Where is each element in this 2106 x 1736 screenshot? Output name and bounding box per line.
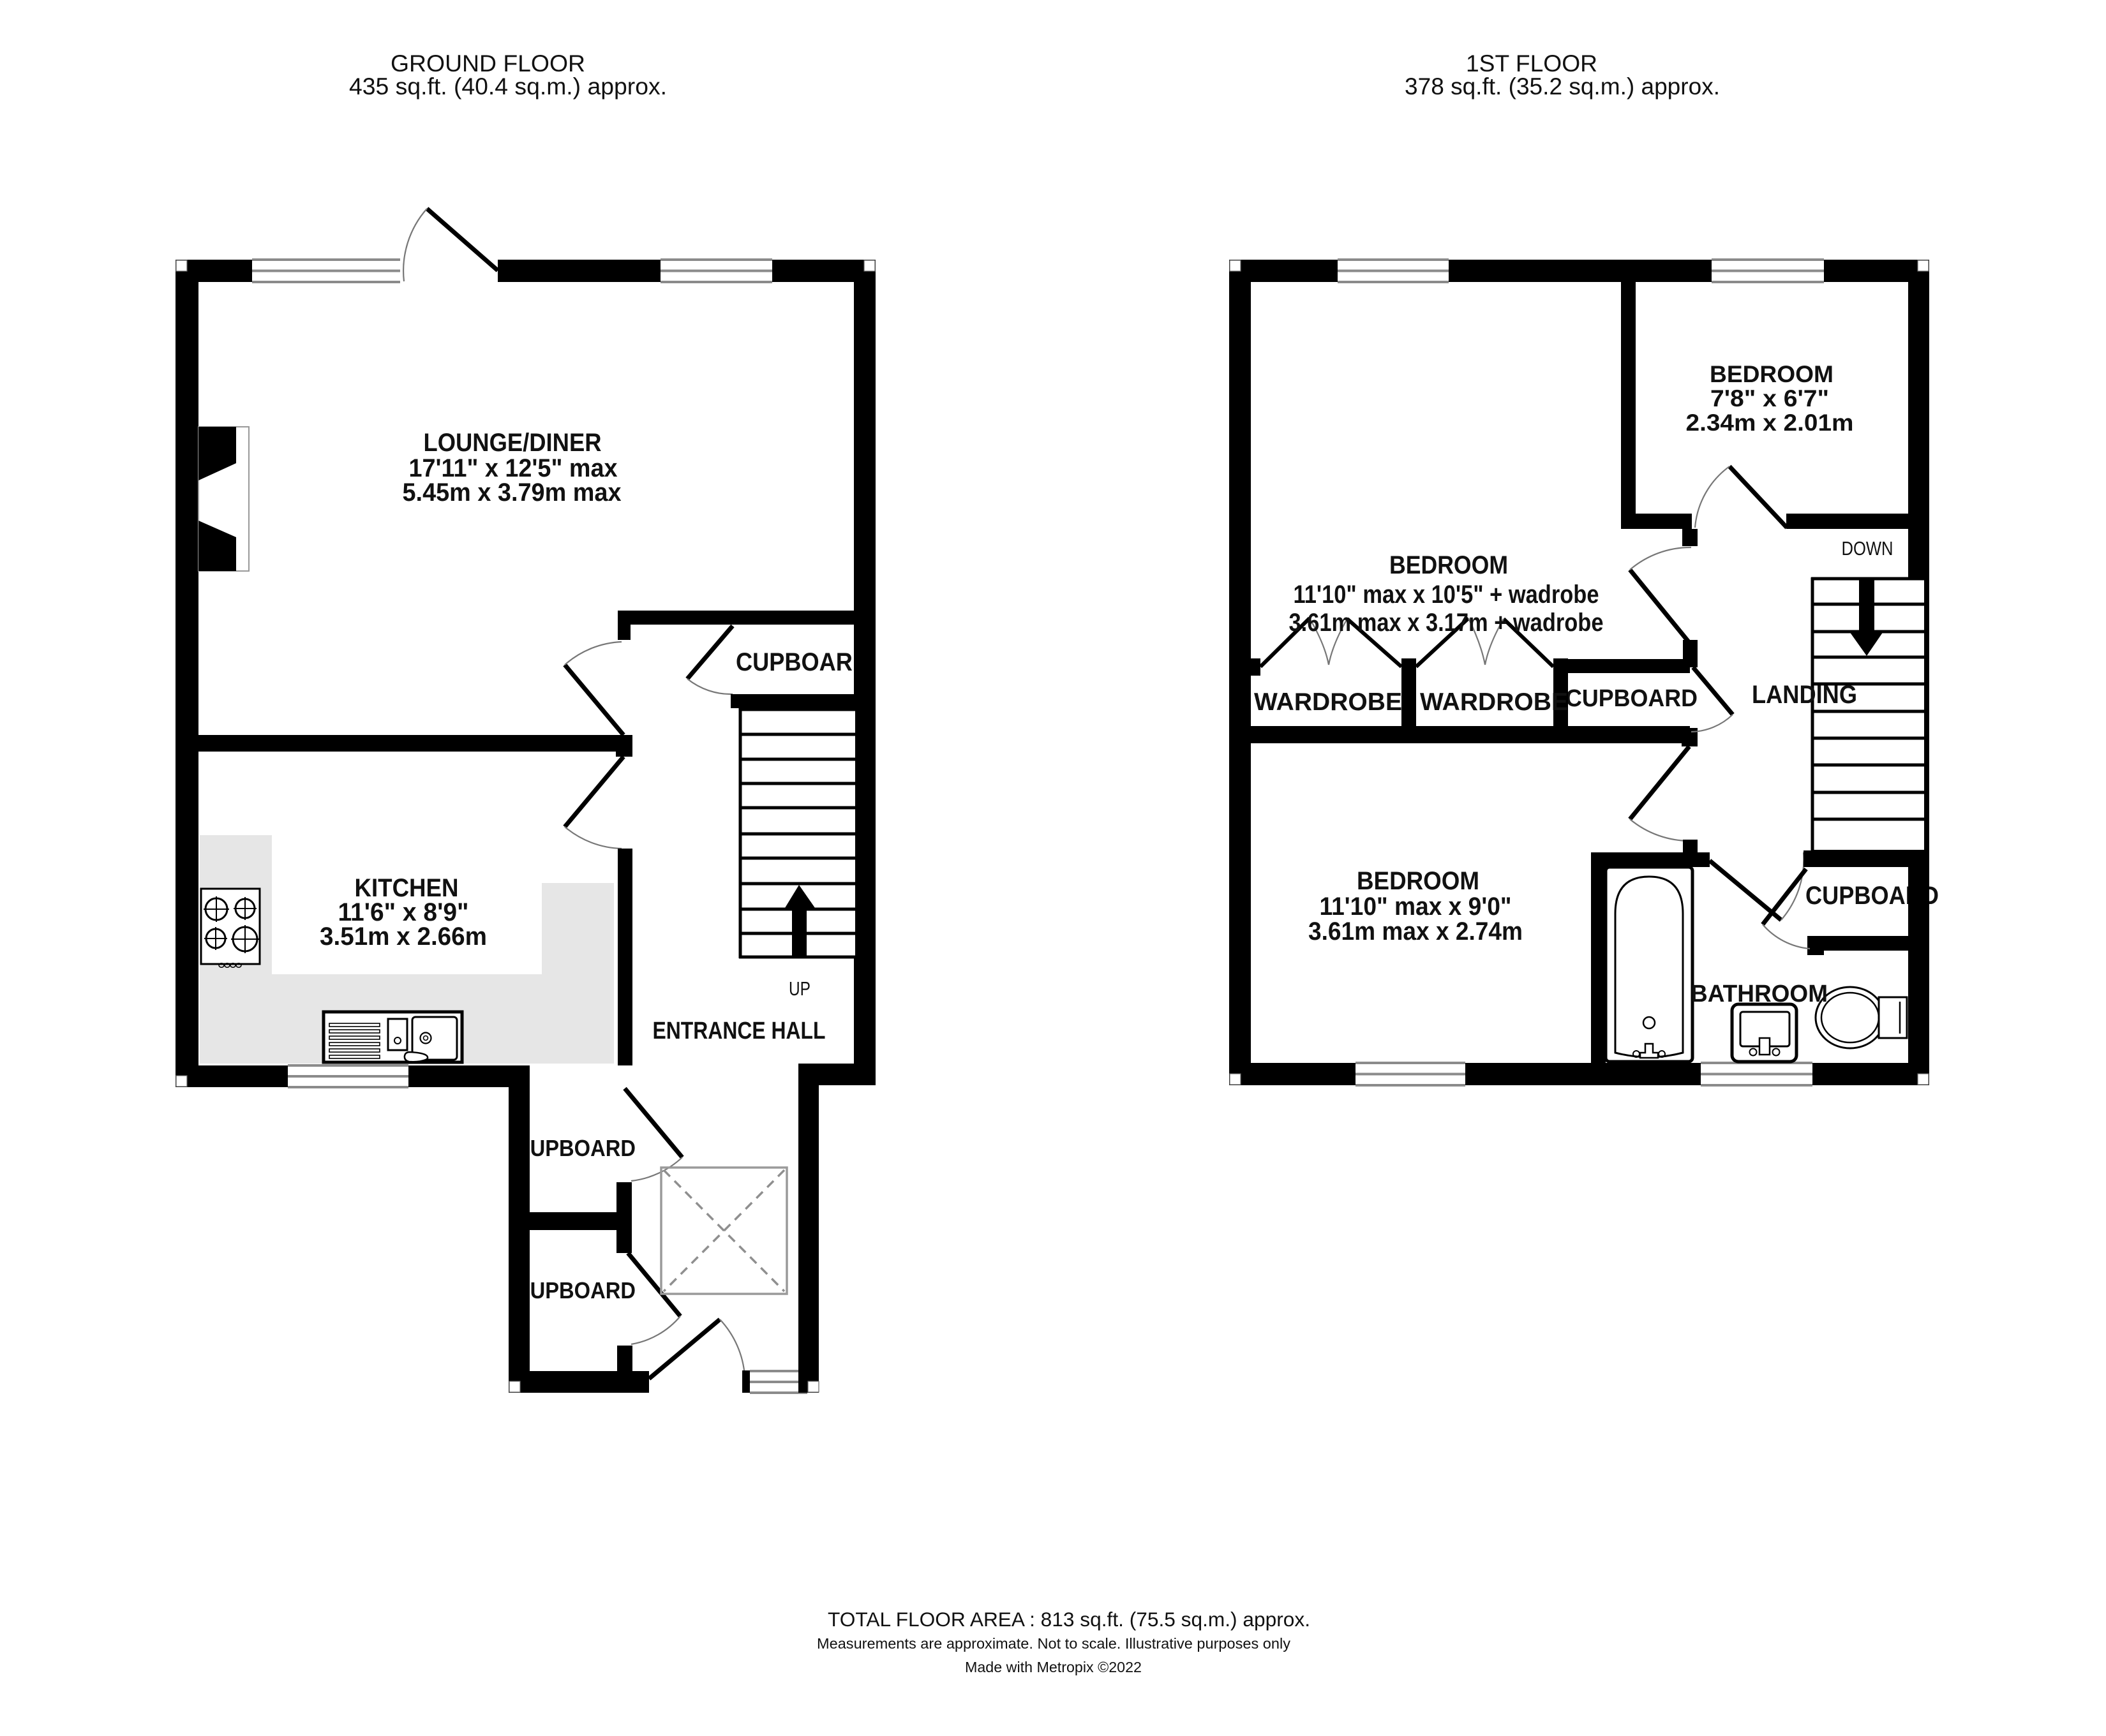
- svg-text:3.61m max x 2.74m: 3.61m max x 2.74m: [1308, 917, 1523, 946]
- svg-text:378 sq.ft. (35.2 sq.m.) approx: 378 sq.ft. (35.2 sq.m.) approx.: [1405, 73, 1720, 100]
- svg-text:435 sq.ft. (40.4 sq.m.) approx: 435 sq.ft. (40.4 sq.m.) approx.: [349, 73, 667, 100]
- svg-text:Made with Metropix ©2022: Made with Metropix ©2022: [965, 1659, 1142, 1675]
- svg-text:BATHROOM: BATHROOM: [1691, 981, 1828, 1007]
- svg-text:CUPBOARD: CUPBOARD: [1565, 685, 1698, 712]
- svg-text:CUPBOARD: CUPBOARD: [515, 1277, 636, 1303]
- svg-text:2.34m x 2.01m: 2.34m x 2.01m: [1686, 410, 1854, 436]
- svg-text:WARDROBE: WARDROBE: [1254, 688, 1402, 716]
- svg-text:ENTRANCE HALL: ENTRANCE HALL: [653, 1018, 826, 1044]
- svg-text:11'10" max x 10'5" + wadrobe: 11'10" max x 10'5" + wadrobe: [1294, 581, 1599, 609]
- svg-text:11'10" max x 9'0": 11'10" max x 9'0": [1320, 893, 1512, 921]
- svg-text:Measurements are approximate.: Measurements are approximate. Not to sca…: [817, 1635, 1290, 1652]
- svg-text:WARDROBE: WARDROBE: [1420, 688, 1568, 716]
- svg-text:5.45m x 3.79m max: 5.45m x 3.79m max: [403, 479, 622, 507]
- svg-text:CUPBOARD: CUPBOARD: [515, 1135, 636, 1161]
- svg-text:BEDROOM: BEDROOM: [1710, 361, 1833, 387]
- svg-text:BEDROOM: BEDROOM: [1357, 867, 1479, 895]
- svg-text:BEDROOM: BEDROOM: [1389, 551, 1508, 579]
- svg-text:3.51m x 2.66m: 3.51m x 2.66m: [320, 923, 487, 951]
- svg-text:TOTAL FLOOR AREA : 813 sq.ft.: TOTAL FLOOR AREA : 813 sq.ft. (75.5 sq.m…: [828, 1608, 1310, 1631]
- svg-text:3.61m max x 3.17m + wadrobe: 3.61m max x 3.17m + wadrobe: [1289, 609, 1604, 637]
- svg-text:7'8" x 6'7": 7'8" x 6'7": [1710, 385, 1829, 412]
- svg-text:UP: UP: [789, 977, 810, 1000]
- svg-text:CUPBOARD: CUPBOARD: [736, 648, 869, 676]
- svg-text:LANDING: LANDING: [1752, 681, 1857, 709]
- svg-text:DOWN: DOWN: [1842, 537, 1893, 560]
- svg-text:LOUNGE/DINER: LOUNGE/DINER: [424, 429, 602, 457]
